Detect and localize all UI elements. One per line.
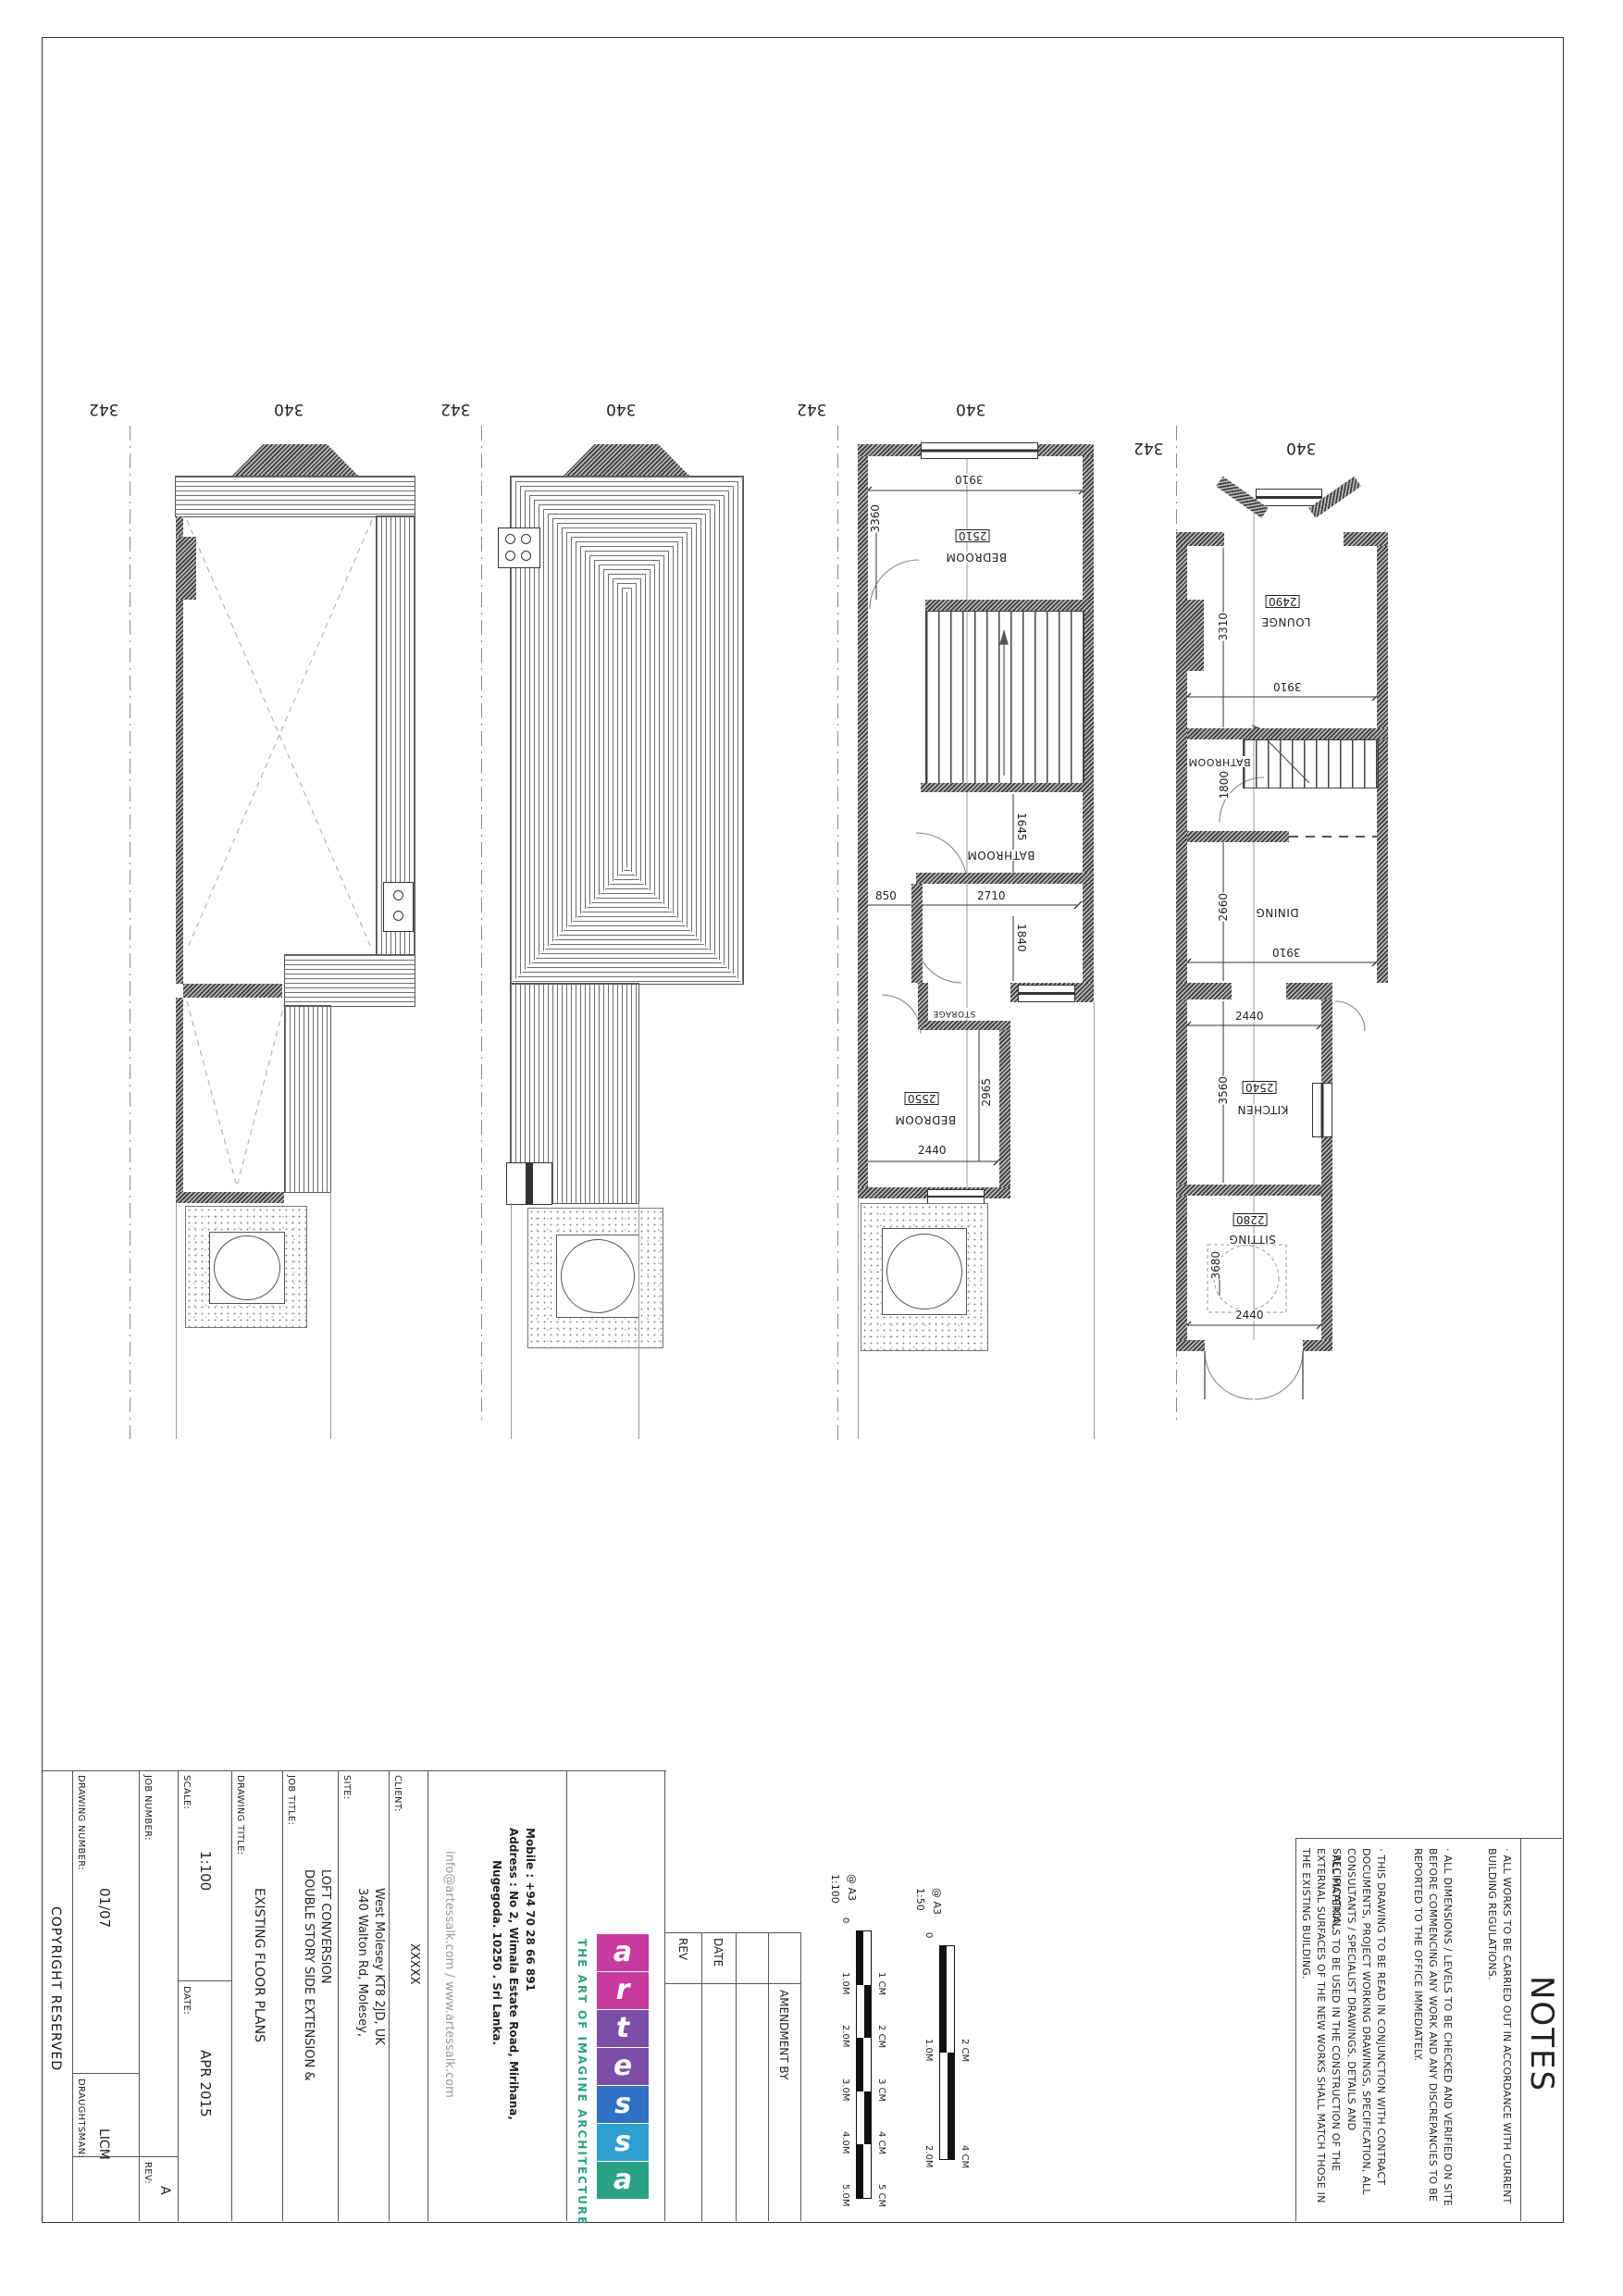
tb-divider	[231, 1770, 232, 2221]
tb-divider	[427, 1770, 428, 2221]
gf-sitting-label: SITTING	[1229, 1234, 1276, 1245]
tb-divider	[664, 1770, 665, 2221]
loft-rear-wall	[176, 1192, 284, 1203]
grid-label-342-s2: 342	[440, 403, 470, 415]
job-number-label: JOB NUMBER:	[142, 1775, 153, 1841]
logo-tile: a	[597, 2162, 649, 2199]
artessa-logo: a r t e s s a	[597, 1934, 650, 2203]
gf-kitchen-window	[1312, 1083, 1332, 1137]
loft-corner-slope	[285, 955, 415, 1006]
amend-divider	[701, 1932, 702, 2221]
fence-s1-left	[176, 1203, 177, 1439]
gf-kitchen-label: KITCHEN	[1237, 1104, 1289, 1115]
gf-dining-label: DINING	[1256, 907, 1299, 918]
loft-offshoot-slope	[285, 1006, 330, 1192]
drawing-number-value: 01/07	[96, 1888, 113, 1928]
gf-door-jamb-l	[1176, 1340, 1205, 1351]
garden-patio-s3	[861, 1203, 988, 1351]
boundary-line-s1	[130, 426, 130, 1439]
sb100-tick: 2 CM	[876, 2025, 886, 2048]
titleblock-top-border	[42, 1770, 666, 1771]
grid-label-340-s2: 340	[606, 403, 636, 415]
logo-tile: e	[597, 2048, 649, 2085]
drawing-number-label: DRAWING NUMBER:	[76, 1775, 86, 1870]
sb100-tick: 1.0M	[840, 1972, 850, 1995]
gf-lounge-label: LOUNGE	[1261, 616, 1310, 627]
address-line1: Address : No 2, Wimala Estate Road, Miri…	[507, 1828, 520, 2120]
grid-label-342-s3: 342	[797, 403, 826, 415]
gf-dining-front-wall-dashed	[1289, 836, 1377, 838]
grid-label-342-s4: 342	[1134, 442, 1163, 453]
boundary-line-s2	[481, 426, 482, 1425]
mobile-text: Mobile : +94 70 28 66 891	[524, 1828, 537, 1992]
drawing-sheet: 342 340 342 340 342 340 342 340	[0, 0, 1623, 2296]
drawing-title-label: DRAWING TITLE:	[235, 1775, 245, 1855]
notes-heading-divider	[1520, 1838, 1521, 2221]
draughtsman-value: LICM	[96, 2128, 111, 2160]
logo-tile: s	[597, 2124, 649, 2161]
fence-s1-right	[330, 1192, 331, 1439]
rev-label: REV:	[142, 2162, 153, 2184]
garden-patio-s1	[185, 1206, 307, 1328]
scalebar100-sheet: @ A3	[846, 1874, 858, 1901]
sb100-tick: 4.0M	[840, 2131, 850, 2154]
sb50-tick: 2 CM	[960, 2039, 970, 2062]
gf-dining-front-wall	[1187, 831, 1289, 842]
ff-stairs	[925, 611, 1084, 785]
gf-width-dim-1: 3910	[1273, 681, 1302, 692]
roof-rooflight	[506, 1162, 552, 1205]
gf-dining-depth-dim: 2660	[1218, 893, 1229, 922]
sb50-tick: 2.0M	[923, 2145, 934, 2168]
gf-lounge-depth-dim: 3310	[1218, 613, 1229, 641]
scalebar-100	[857, 1931, 871, 2198]
gf-bathroom-dim: 1800	[1219, 771, 1230, 800]
site-label: SITE:	[341, 1775, 352, 1800]
email-web-text: info@artessalk.com / www.artessalk.com	[442, 1851, 456, 2098]
job-title-label: JOB TITLE:	[286, 1775, 296, 1825]
site-line1: 340 Walton Rd, Molesey,	[355, 1888, 369, 2037]
notes-top-border	[1295, 1838, 1562, 1839]
loft-eaves-band	[176, 477, 415, 516]
amend-by-header: AMENDMENT BY	[777, 1990, 790, 2079]
scale-value: 1:100	[197, 1851, 214, 1891]
gf-sitting-front-wall	[1176, 1185, 1332, 1196]
amend-date-header: DATE	[712, 1938, 725, 1967]
gf-sitting-right-wall	[1321, 1196, 1332, 1351]
ff-bathroom-wall	[916, 873, 1094, 884]
loft-offshoot-left-wall	[176, 998, 183, 1192]
scale-label: SCALE:	[181, 1775, 192, 1809]
sb100-tick: 4 CM	[876, 2131, 886, 2154]
gf-kitchen-width-dim: 2440	[1235, 1011, 1264, 1022]
ff-storage-label: STORAGE	[933, 1008, 975, 1019]
tb-subline	[178, 1980, 231, 1981]
gf-chimney-breast	[1176, 600, 1204, 671]
logo-tile: s	[597, 2086, 649, 2123]
drawing-title-value: EXISTING FLOOR PLANS	[252, 1888, 266, 2042]
sb100-tick: 1 CM	[876, 1972, 886, 1995]
ff-landing-dim: 850	[875, 890, 897, 901]
tb-divider	[178, 1770, 179, 2221]
tb-subline	[72, 2073, 139, 2074]
site-line2: West Molesey KT8 2JD, UK	[372, 1888, 386, 2045]
sb100-tick: 3 CM	[876, 2079, 886, 2102]
amend-divider	[736, 1932, 737, 2221]
logo-tile: t	[597, 2010, 649, 2047]
sb100-tick: 5.0M	[840, 2184, 850, 2207]
sb100-tick: 5 CM	[876, 2184, 886, 2207]
gf-kitchen-front-wall-l	[1176, 983, 1232, 999]
ff-2710-dim: 2710	[977, 890, 1006, 901]
ff-offshoot-right-wall	[999, 1030, 1010, 1197]
gf-sitting-height: 2280	[1233, 1213, 1268, 1226]
ff-2440-dim: 2440	[918, 1145, 947, 1156]
gf-kitchen-height: 2540	[1243, 1081, 1277, 1094]
sb50-tick: 4 CM	[960, 2145, 970, 2168]
loft-internal-wall	[183, 984, 282, 998]
grid-label-340-s3: 340	[956, 403, 985, 415]
amend-rev-header: REV	[676, 1938, 689, 1960]
tb-divider	[389, 1770, 390, 2221]
sb100-tick: 2.0M	[840, 2025, 850, 2048]
ff-left-wall	[858, 456, 868, 1197]
gf-front-wall-r	[1344, 532, 1388, 546]
notes-paragraph-2: · ALL DIMENSIONS / LEVELS TO BE CHECKED …	[1410, 1848, 1455, 2214]
gf-width-dim-2: 3910	[1272, 947, 1301, 958]
ff-bedroom-depth-dim: 3360	[870, 504, 881, 533]
sb100-tick: 3.0M	[840, 2079, 850, 2102]
job-title-line1: DOUBLE STORY SIDE EXTENSION &	[302, 1869, 316, 2081]
amend-line	[664, 1983, 800, 1984]
copyright-text: COPYRIGHT RESERVED	[48, 1906, 63, 2071]
roof-chimney-stack	[498, 527, 540, 568]
amend-divider	[800, 1932, 801, 2221]
loft-chimney-stack	[383, 882, 414, 932]
scalebar50-title: 1:50	[914, 1888, 926, 1911]
logo-tagline: THE ART OF IMAGINE ARCHITECTURE	[576, 1939, 588, 2226]
logo-tile: a	[597, 1934, 649, 1971]
gf-door-jamb-r	[1303, 1340, 1332, 1351]
ff-stairs-wall	[921, 783, 1094, 792]
date-label: DATE:	[181, 1986, 192, 2015]
ff-internal-wall	[911, 884, 923, 983]
sb50-tick: 0	[923, 1932, 934, 1938]
gf-front-wall-l	[1176, 532, 1224, 546]
draughtsman-label: DRAUGHTSMAN:	[76, 2079, 86, 2158]
tb-subline	[72, 2156, 178, 2157]
scalebar100-title: 1:100	[829, 1874, 841, 1904]
client-value: XXXXX	[407, 1943, 421, 1985]
ff-2965-dim: 2965	[981, 1078, 992, 1107]
sb50-tick: 1.0M	[923, 2039, 934, 2062]
gf-sitting-left-wall	[1176, 1196, 1187, 1351]
gf-bathroom-label: BATHROOM	[1188, 756, 1251, 767]
fence-s2-right	[638, 1203, 639, 1439]
ff-bedroom2-height: 2550	[905, 1092, 939, 1105]
roof-plan-body	[511, 477, 743, 984]
fence-s2-left	[511, 1203, 512, 1439]
grid-label-340-s1: 340	[274, 403, 304, 415]
tb-divider	[139, 1770, 140, 2221]
gf-kitchen-front-wall-r	[1286, 983, 1332, 999]
ff-bedroom-height: 2510	[956, 529, 990, 542]
gf-sitting-width-dim: 2440	[1235, 1309, 1264, 1321]
grid-label-340-s4: 340	[1286, 442, 1316, 453]
garden-patio-s2	[527, 1208, 663, 1348]
ff-rear-body-window	[1018, 985, 1075, 1002]
gf-stairs	[1243, 739, 1379, 788]
date-value: APR 2015	[197, 2050, 214, 2117]
gf-kitchen-depth-dim: 3560	[1218, 1076, 1229, 1105]
tb-divider	[566, 1770, 567, 2221]
boundary-line-s3	[837, 426, 838, 1444]
job-title-line2: LOFT CONVERSION	[318, 1869, 332, 1984]
amend-divider	[768, 1932, 769, 2221]
loft-chimney-breast	[176, 537, 196, 600]
gf-lounge-height: 2490	[1266, 595, 1300, 608]
ff-rear-window	[927, 1189, 985, 1204]
ff-1840-dim: 1840	[1016, 924, 1027, 952]
rev-value: A	[157, 2186, 172, 2195]
client-label: CLIENT:	[392, 1775, 403, 1812]
notes-paragraph-1: · ALL WORKS TO BE CARRIED OUT IN ACCORDA…	[1484, 1848, 1514, 2214]
gf-bay-window	[1256, 489, 1322, 506]
ff-bedroom2-label: BEDROOM	[895, 1114, 956, 1125]
ff-bathroom-label: BATHROOM	[967, 850, 1035, 861]
ff-bedroom-label: BEDROOM	[946, 552, 1007, 563]
amend-line	[664, 1932, 800, 1933]
sb100-tick: 0	[840, 1917, 850, 1923]
ff-width-dim: 3910	[955, 474, 984, 485]
notes-heading: NOTES	[1523, 1976, 1560, 2092]
tb-divider	[338, 1770, 339, 2221]
notes-paragraph-4: · ALL MATERIALS TO BE USED IN THE CONSTR…	[1298, 1848, 1343, 2214]
scalebar-50	[940, 1946, 954, 2159]
scalebar50-sheet: @ A3	[931, 1888, 943, 1915]
address-line2: Nugegoda. 10250 . Sri Lanka.	[490, 1860, 503, 2045]
ff-storage-wall-b	[925, 1021, 1010, 1030]
notes-left-border	[1295, 1838, 1296, 2221]
tb-divider	[282, 1770, 283, 2221]
fence-s3-right	[1094, 1002, 1095, 1439]
gf-sitting-depth-dim: 3680	[1210, 1251, 1221, 1280]
fence-s3-left	[858, 1198, 859, 1439]
ff-bathroom-dim: 1645	[1016, 813, 1027, 841]
ff-front-window	[921, 442, 1038, 459]
logo-tile: r	[597, 1972, 649, 2009]
gf-lounge-rear-wall	[1187, 728, 1388, 739]
ff-bedroom-wall	[925, 600, 1094, 611]
tb-divider	[72, 1770, 73, 2221]
grid-label-342-s1: 342	[89, 403, 118, 415]
